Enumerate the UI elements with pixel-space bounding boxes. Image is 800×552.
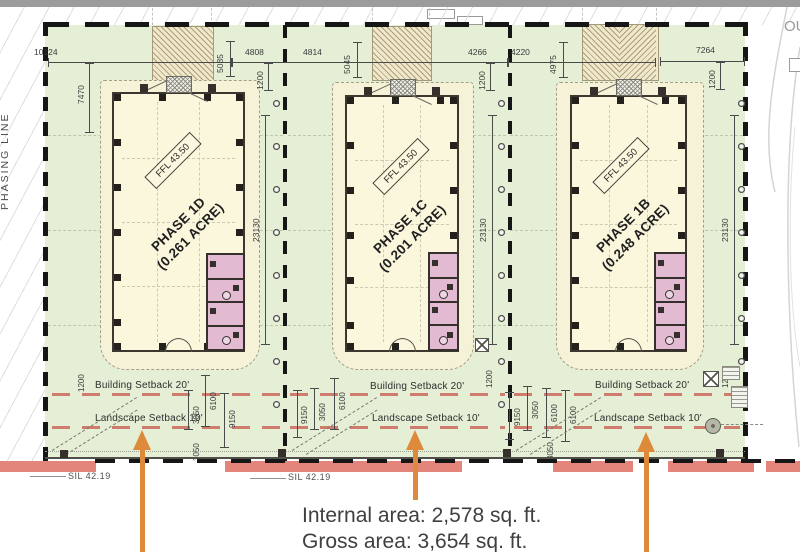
- leader-line: [250, 478, 286, 479]
- dimension-label: 4266: [468, 48, 487, 57]
- leader-line: [30, 476, 66, 477]
- column-block: [658, 87, 666, 95]
- dimension-label: 1200: [78, 366, 86, 392]
- porch-canopy-1c: [364, 77, 440, 97]
- dimension-label: 9150: [301, 394, 309, 424]
- dimension-line: [492, 115, 493, 345]
- callout-arrow-middle-shaft: [413, 450, 418, 500]
- internal-area-note: Internal area: 2,578 sq. ft.: [302, 504, 541, 528]
- bathroom-core-1d: [206, 253, 245, 351]
- offsite-structure: [789, 58, 800, 72]
- porch-canopy-1b: [590, 77, 666, 97]
- dimension-label: 1200: [478, 64, 487, 90]
- dimension-line: [230, 41, 231, 77]
- fixture: [447, 332, 453, 338]
- landscape-setback-line: [290, 426, 505, 429]
- dimension-line: [224, 393, 225, 448]
- dimension-line: [48, 62, 232, 63]
- fixture: [233, 285, 239, 291]
- dimension-label: 3050: [532, 389, 540, 419]
- partition-wall: [208, 278, 243, 280]
- dimension-line: [265, 115, 266, 345]
- landscape-setback-label: Landscape Setback 10': [594, 413, 702, 424]
- column-block: [140, 84, 148, 92]
- utility-note-block: [722, 366, 740, 380]
- dimension-label: 3050: [193, 394, 201, 424]
- fixture: [210, 308, 216, 314]
- column-block: [432, 87, 440, 95]
- dimension-label: 6100: [339, 380, 347, 410]
- road-boundary-dashes: [95, 459, 800, 463]
- offsite-label-clipped: OU: [784, 18, 800, 35]
- bathroom-core-1b: [654, 252, 687, 351]
- partition-wall: [208, 301, 243, 303]
- boundary-left-phasing-line: [43, 22, 48, 462]
- site-plan-canvas: PHASING LINE FFL 43.50: [0, 0, 800, 552]
- chevron-right-half: [620, 25, 656, 80]
- column-row: [114, 94, 243, 101]
- dimension-label: 5045: [343, 40, 352, 74]
- dimension-line: [527, 386, 528, 431]
- grid-bubble-column: [272, 98, 281, 433]
- gross-area-note: Gross area: 3,654 sq. ft.: [302, 530, 527, 552]
- dimension-label: 1200: [486, 362, 494, 388]
- dimension-label: 4220: [511, 48, 530, 57]
- dimension-line: [720, 62, 721, 90]
- dimension-line: [508, 62, 656, 63]
- partition-wall: [208, 325, 243, 327]
- dimension-label: 5085: [216, 39, 225, 73]
- fixture: [432, 260, 438, 266]
- fixture: [233, 332, 239, 338]
- callout-arrow-right: [637, 432, 655, 452]
- dimension-label: 23130: [479, 188, 488, 242]
- fixture: [210, 261, 216, 267]
- dimension-label: 6100: [551, 392, 559, 422]
- building-setback-label: Building Setback 20': [370, 381, 464, 392]
- building-setback-label: Building Setback 20': [595, 380, 689, 391]
- fixture: [658, 307, 664, 313]
- dimension-line: [314, 388, 315, 430]
- dimension-label: 4975: [549, 40, 558, 74]
- manhole-symbol: [705, 418, 721, 434]
- dimension-label: 1200: [256, 64, 265, 90]
- column-row: [114, 94, 121, 350]
- entry-mat: [166, 76, 192, 93]
- dimension-label: 7470: [77, 72, 86, 104]
- fixture: [658, 260, 664, 266]
- entry-mat: [616, 79, 642, 96]
- landscape-setback-label: Landscape Setback 10': [95, 413, 203, 424]
- dimension-label: 6100: [210, 380, 218, 410]
- building-setback-line: [514, 393, 740, 396]
- fixture: [447, 284, 453, 290]
- fixture-basin: [665, 336, 674, 345]
- utility-box-symbol: [703, 371, 719, 387]
- column-block: [208, 84, 216, 92]
- dimension-label: 23130: [252, 188, 261, 242]
- dimension-label: 1200: [708, 63, 717, 89]
- sil-level-label: SIL 42.19: [68, 471, 111, 481]
- dimension-line: [205, 375, 206, 427]
- dimension-label: 4808: [245, 48, 264, 57]
- driveway-hatch-1c: [372, 26, 432, 81]
- dimension-line: [509, 392, 510, 440]
- dimension-line: [660, 61, 745, 62]
- boundary-marker: [503, 449, 511, 457]
- fixture-basin: [665, 290, 674, 299]
- building-setback-line: [52, 393, 280, 396]
- dimension-label: 4814: [303, 48, 322, 57]
- dimension-line: [490, 63, 491, 91]
- fixture-basin: [439, 336, 448, 345]
- fixture-basin: [222, 336, 231, 345]
- fixture: [674, 284, 680, 290]
- partition-wall: [430, 301, 457, 303]
- dimension-line: [188, 390, 189, 430]
- driveway-hatch-1d: [152, 26, 214, 81]
- dimension-label: 23130: [721, 188, 730, 242]
- column-block: [364, 87, 372, 95]
- partition-wall: [656, 324, 685, 326]
- top-road-band: [0, 0, 800, 7]
- dimension-label: 9150: [514, 396, 522, 426]
- dimension-label: 7264: [696, 46, 715, 55]
- dimension-label: 10124: [34, 48, 58, 57]
- porch-canopy-1d: [140, 74, 216, 94]
- callout-arrow-left: [133, 430, 151, 450]
- dimension-label: 3050: [547, 430, 555, 460]
- dimension-line: [268, 63, 269, 91]
- fixture: [674, 332, 680, 338]
- fixture: [432, 307, 438, 313]
- column-row: [347, 97, 457, 104]
- dimension-label: 9150: [229, 398, 237, 428]
- column-row: [347, 97, 354, 350]
- chevron-left-half: [583, 25, 620, 80]
- boundary-marker: [716, 449, 724, 457]
- dimension-line: [565, 390, 566, 442]
- dimension-line: [357, 42, 358, 78]
- callout-arrow-middle: [406, 430, 424, 450]
- column-block: [590, 87, 598, 95]
- dimension-line: [734, 115, 735, 345]
- partition-wall: [430, 277, 457, 279]
- phasing-line-label: PHASING LINE: [0, 40, 11, 210]
- boundary-top: [45, 22, 745, 27]
- dimension-line: [89, 63, 90, 133]
- boundary-marker: [60, 450, 68, 458]
- partition-wall: [656, 301, 685, 303]
- sil-level-label: SIL 42.19: [288, 472, 331, 482]
- landscape-setback-label: Landscape Setback 10': [372, 413, 480, 424]
- dimension-line: [563, 42, 564, 78]
- dimension-line: [232, 62, 508, 63]
- callout-arrow-left-shaft: [140, 450, 145, 552]
- partition-wall: [656, 277, 685, 279]
- fixture-basin: [222, 291, 231, 300]
- dimension-label: 3050: [319, 391, 327, 421]
- boundary-marker: [278, 449, 286, 457]
- fixture-basin: [439, 290, 448, 299]
- dimension-label: 6100: [570, 394, 578, 424]
- grid-bubble-column: [497, 98, 506, 433]
- dimension-line: [297, 390, 298, 438]
- partition-wall: [430, 324, 457, 326]
- callout-arrow-right-shaft: [644, 452, 649, 552]
- utility-box-symbol: [475, 338, 489, 352]
- entry-mat: [390, 79, 416, 96]
- driveway-hatch-1b: [582, 24, 659, 81]
- building-setback-label: Building Setback 20': [95, 380, 189, 391]
- column-row: [572, 97, 579, 350]
- parcel-divider-line: [283, 25, 287, 462]
- offsite-road-curves: [745, 7, 800, 470]
- column-row: [572, 97, 685, 104]
- bathroom-core-1c: [428, 252, 459, 351]
